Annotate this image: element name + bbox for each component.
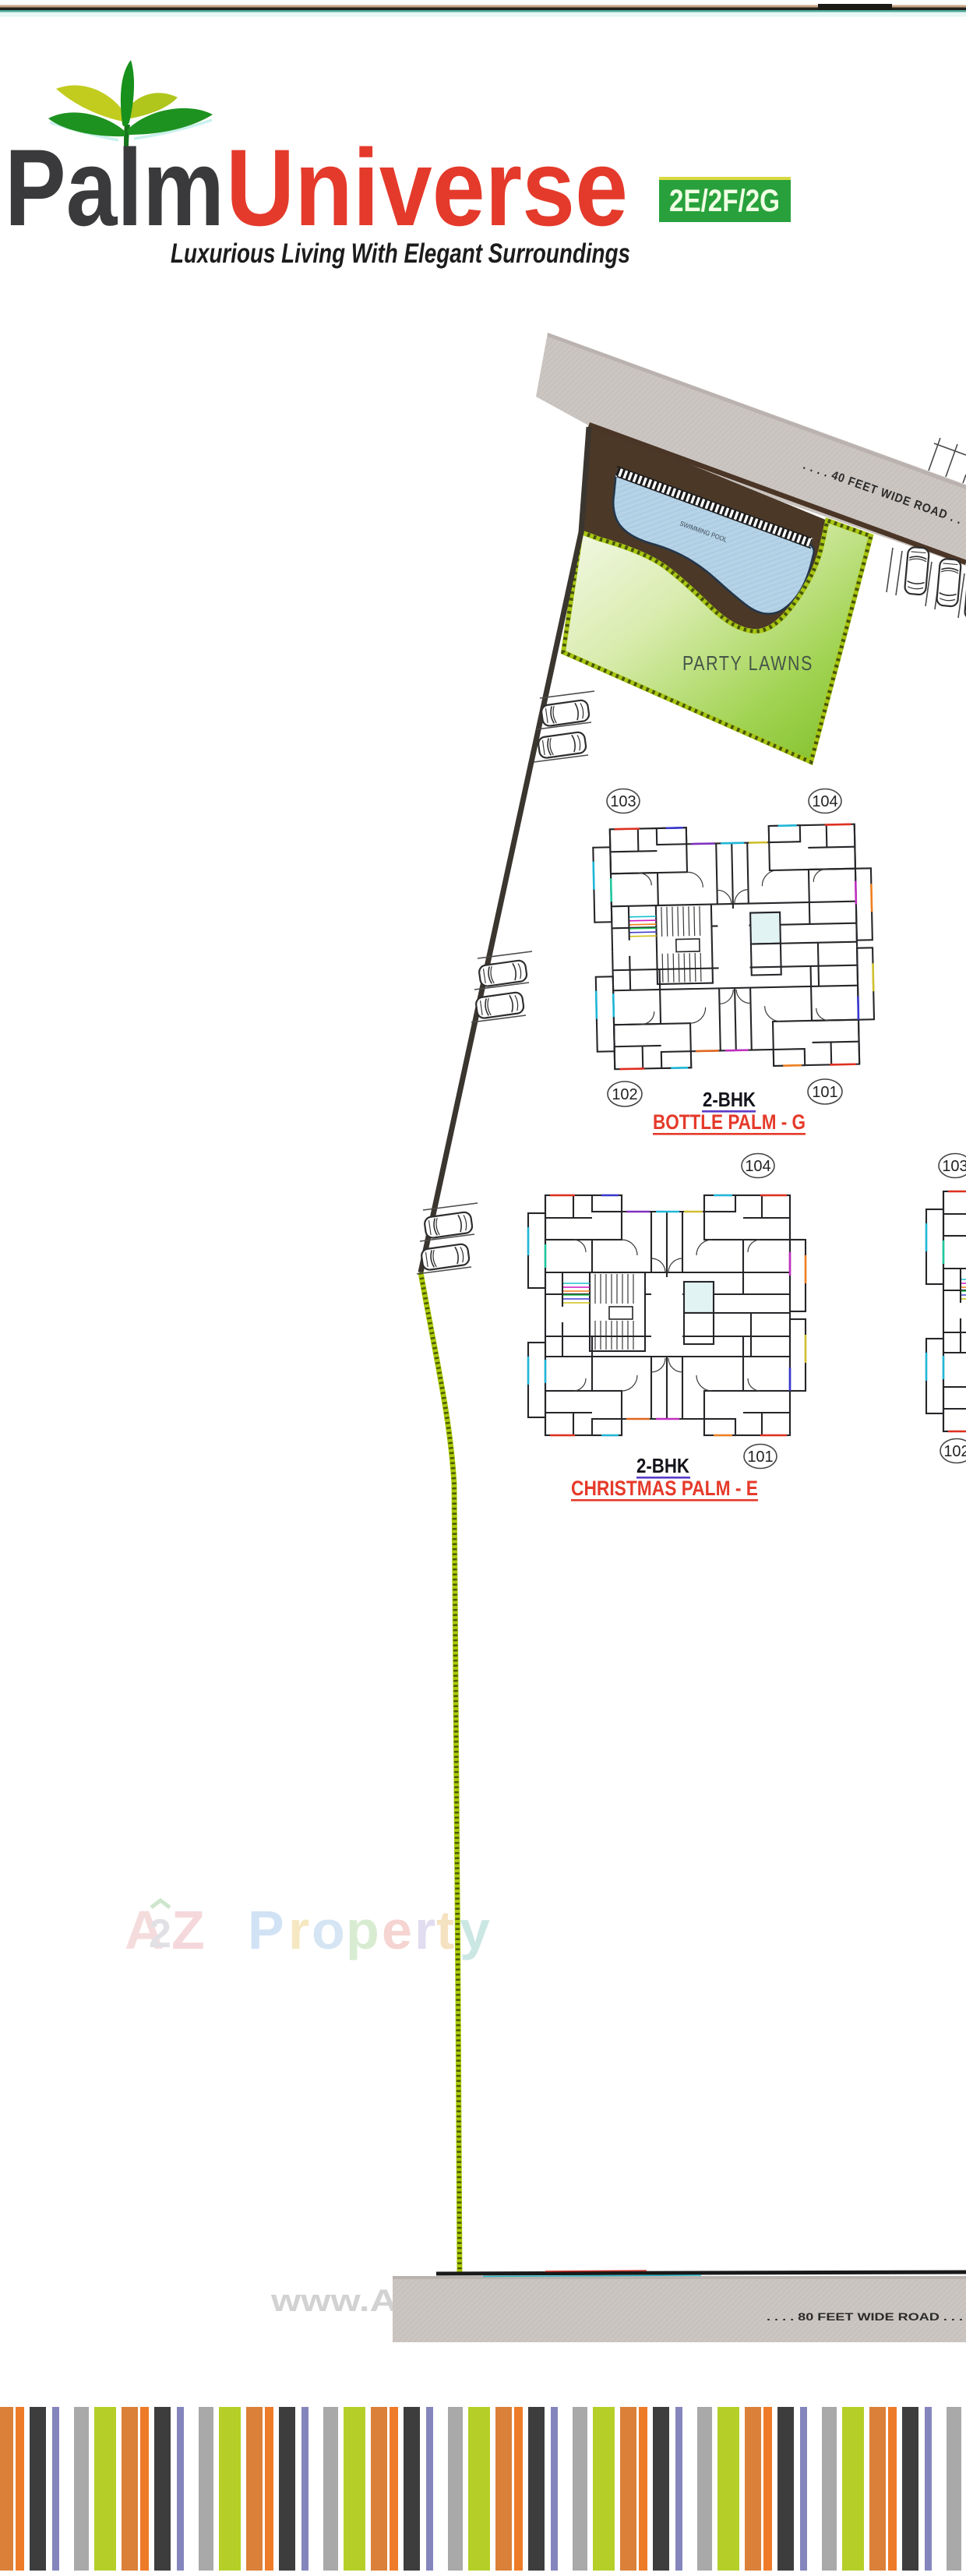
- svg-text:t: t: [436, 1900, 454, 1960]
- svg-text:2-BHK: 2-BHK: [703, 1088, 756, 1111]
- svg-text:101: 101: [747, 1449, 773, 1466]
- svg-text:CHRISTMAS PALM - E: CHRISTMAS PALM - E: [571, 1477, 758, 1500]
- svg-text:e: e: [382, 1900, 412, 1960]
- svg-text:r: r: [288, 1900, 309, 1960]
- svg-text:www.A: www.A: [270, 2284, 397, 2318]
- svg-text:Palm: Palm: [5, 126, 224, 249]
- svg-text:r: r: [414, 1900, 435, 1960]
- svg-text:p: p: [346, 1900, 379, 1960]
- svg-text:104: 104: [745, 1158, 770, 1175]
- svg-text:102: 102: [943, 1443, 966, 1460]
- svg-text:Luxurious Living With Elegant: Luxurious Living With Elegant Surroundin…: [171, 238, 630, 269]
- svg-text:104: 104: [812, 793, 837, 810]
- svg-text:101: 101: [812, 1084, 837, 1101]
- svg-text:103: 103: [942, 1158, 966, 1175]
- svg-text:2: 2: [149, 1911, 171, 1957]
- svg-text:102: 102: [612, 1086, 637, 1103]
- svg-text:Z: Z: [171, 1900, 205, 1960]
- svg-text:PARTY LAWNS: PARTY LAWNS: [682, 651, 813, 675]
- svg-text:P: P: [248, 1900, 284, 1960]
- svg-text:y: y: [460, 1900, 490, 1960]
- svg-text:2-BHK: 2-BHK: [636, 1454, 689, 1477]
- svg-text:103: 103: [610, 793, 636, 810]
- svg-text:BOTTLE PALM - G: BOTTLE PALM - G: [653, 1110, 806, 1134]
- svg-text:o: o: [312, 1900, 345, 1960]
- svg-text:. . . . 80 FEET WIDE ROAD: . . . . 80 FEET WIDE ROAD . . .: [767, 2310, 963, 2323]
- svg-text:Universe: Universe: [226, 126, 628, 249]
- svg-text:2E/2F/2G: 2E/2F/2G: [669, 184, 780, 218]
